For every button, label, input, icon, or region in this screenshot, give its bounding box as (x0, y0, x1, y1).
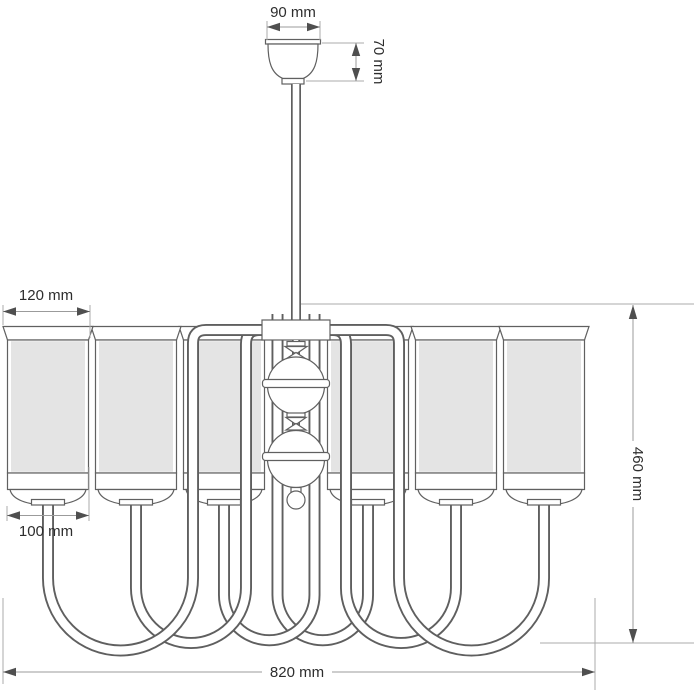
arrow-down-icon (352, 68, 360, 81)
arrow-up-icon (629, 305, 637, 319)
sphere-bottom-ring (263, 453, 330, 461)
hub-plate (262, 320, 330, 340)
lamp-shade-2 (91, 327, 181, 506)
arrow-right-icon (307, 23, 320, 31)
arrow-right-icon (76, 511, 89, 519)
sphere-top-ring (263, 380, 330, 388)
arrow-left-icon (3, 668, 16, 676)
arrow-right-icon (77, 307, 90, 315)
ceiling-canopy (266, 40, 321, 85)
arrow-left-icon (267, 23, 280, 31)
dimension-label: 100 mm (19, 523, 73, 540)
arrow-left-icon (7, 511, 20, 519)
dimension-label: 820 mm (270, 664, 324, 681)
lamp-shade-6 (499, 327, 589, 506)
arrow-up-icon (352, 43, 360, 56)
dimension-label: 90 mm (270, 4, 316, 21)
dimension-label: 120 mm (19, 287, 73, 304)
finial-ball (287, 491, 305, 509)
dimension-label: 460 mm (629, 447, 646, 501)
arrow-down-icon (629, 629, 637, 643)
drawing-canvas: 90 mm 70 mm 120 mm 100 mm 460 mm (0, 0, 700, 700)
lamp-shade-5 (411, 327, 501, 506)
arrow-left-icon (3, 307, 16, 315)
hourglass-connector-bottom (286, 413, 306, 430)
chandelier-technical-drawing: 90 mm 70 mm 120 mm 100 mm 460 mm (0, 0, 700, 700)
lamp-shade-1 (3, 327, 93, 506)
arrow-right-icon (582, 668, 595, 676)
dimension-label: 70 mm (370, 39, 387, 85)
dimension-canopy-width: 90 mm (267, 4, 320, 40)
